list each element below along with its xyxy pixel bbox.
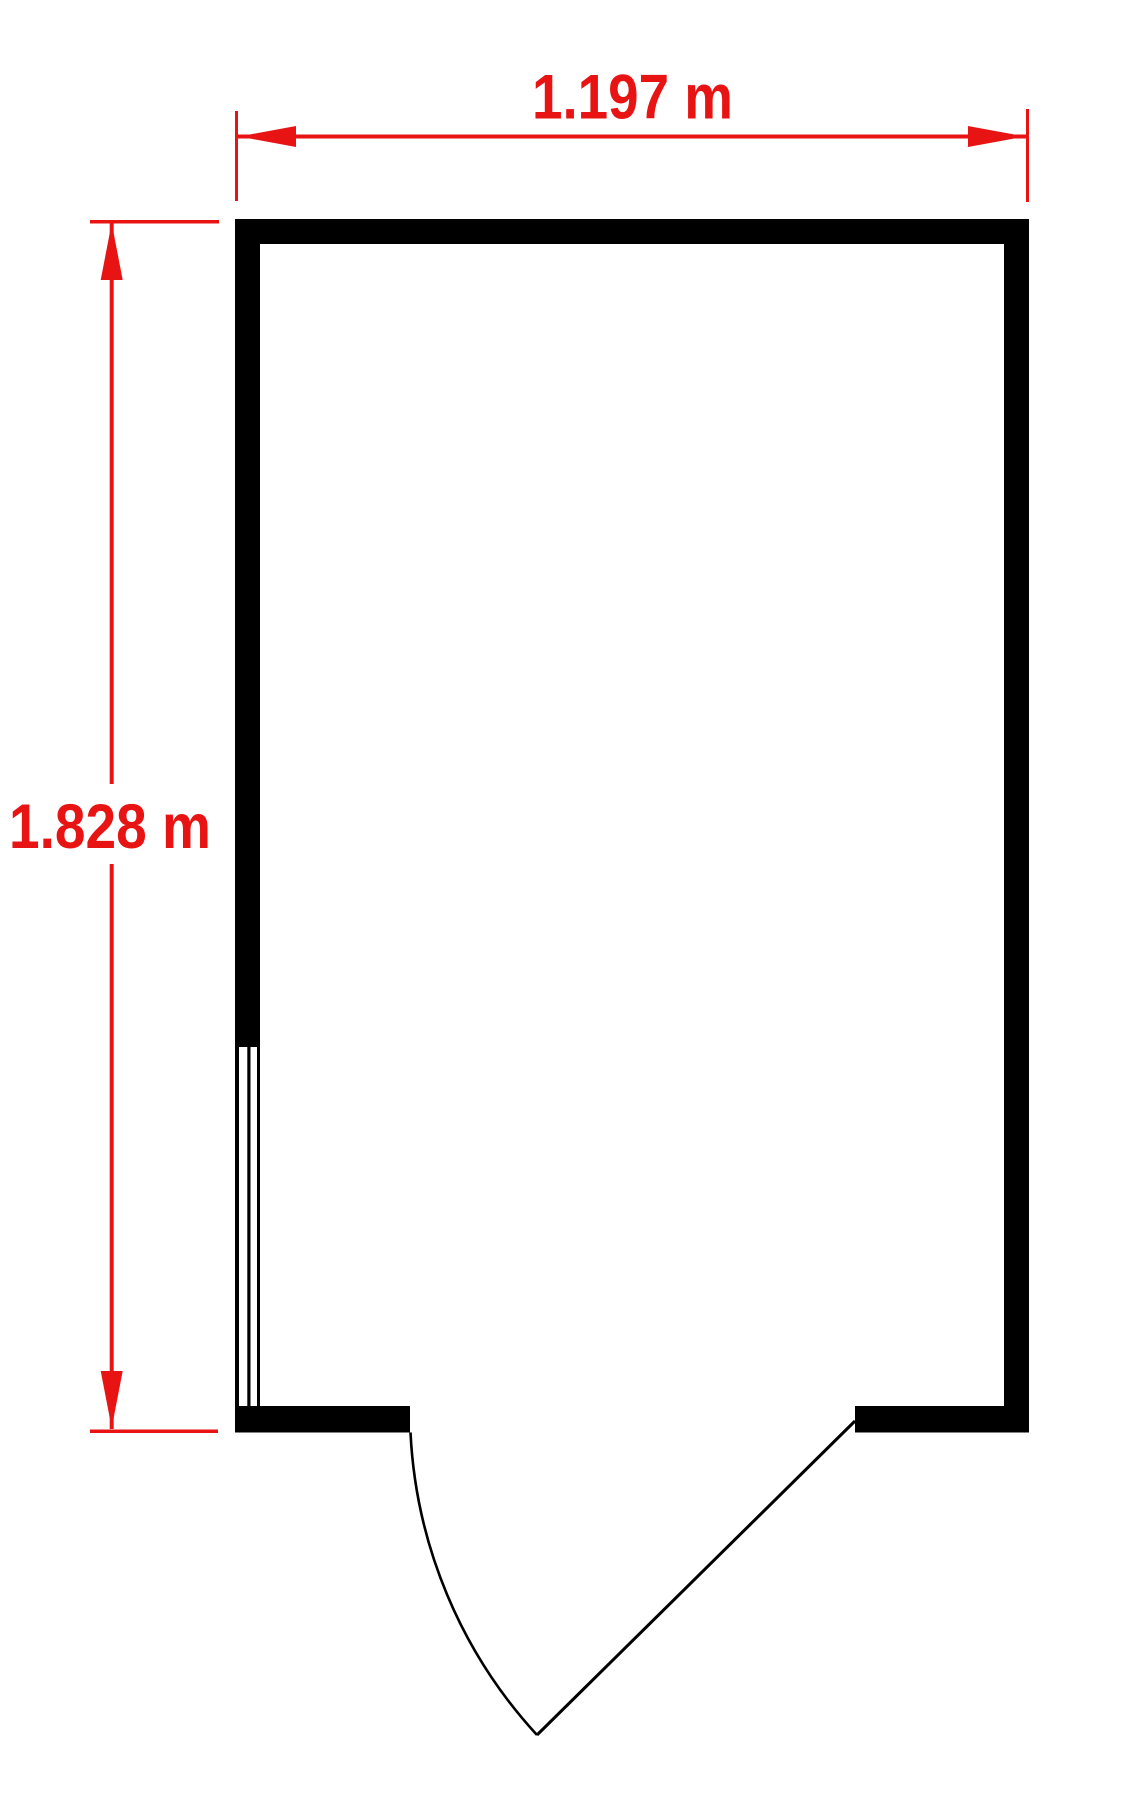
- svg-text:1.197 m: 1.197 m: [532, 63, 733, 133]
- svg-text:1.828 m: 1.828 m: [9, 792, 211, 862]
